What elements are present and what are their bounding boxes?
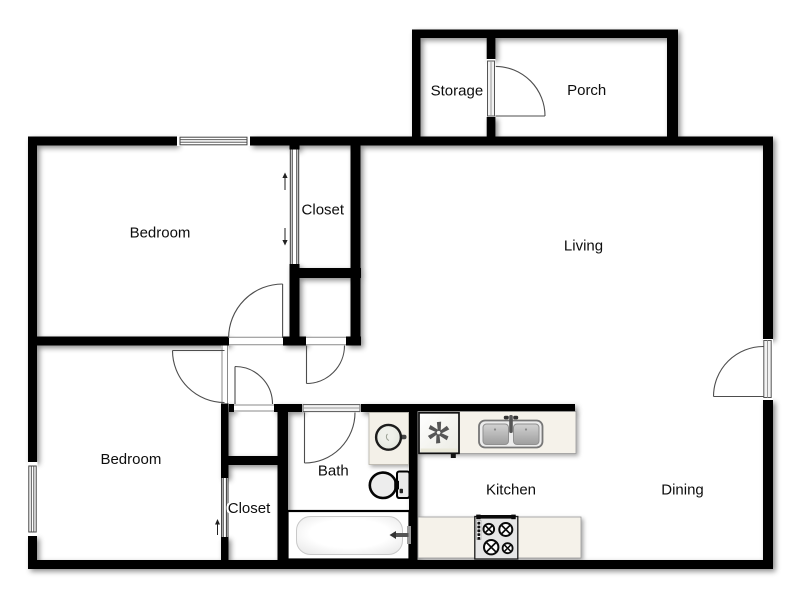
svg-text:Bedroom: Bedroom bbox=[100, 451, 161, 468]
svg-text:Porch: Porch bbox=[567, 82, 606, 99]
svg-text:Living: Living bbox=[564, 237, 603, 254]
svg-text:Storage: Storage bbox=[431, 82, 484, 99]
svg-text:Bath: Bath bbox=[318, 463, 349, 480]
svg-text:Closet: Closet bbox=[302, 202, 345, 219]
svg-text:Kitchen: Kitchen bbox=[486, 482, 536, 499]
svg-text:Closet: Closet bbox=[228, 500, 271, 517]
svg-text:Dining: Dining bbox=[661, 482, 704, 499]
svg-text:Bedroom: Bedroom bbox=[130, 224, 191, 241]
